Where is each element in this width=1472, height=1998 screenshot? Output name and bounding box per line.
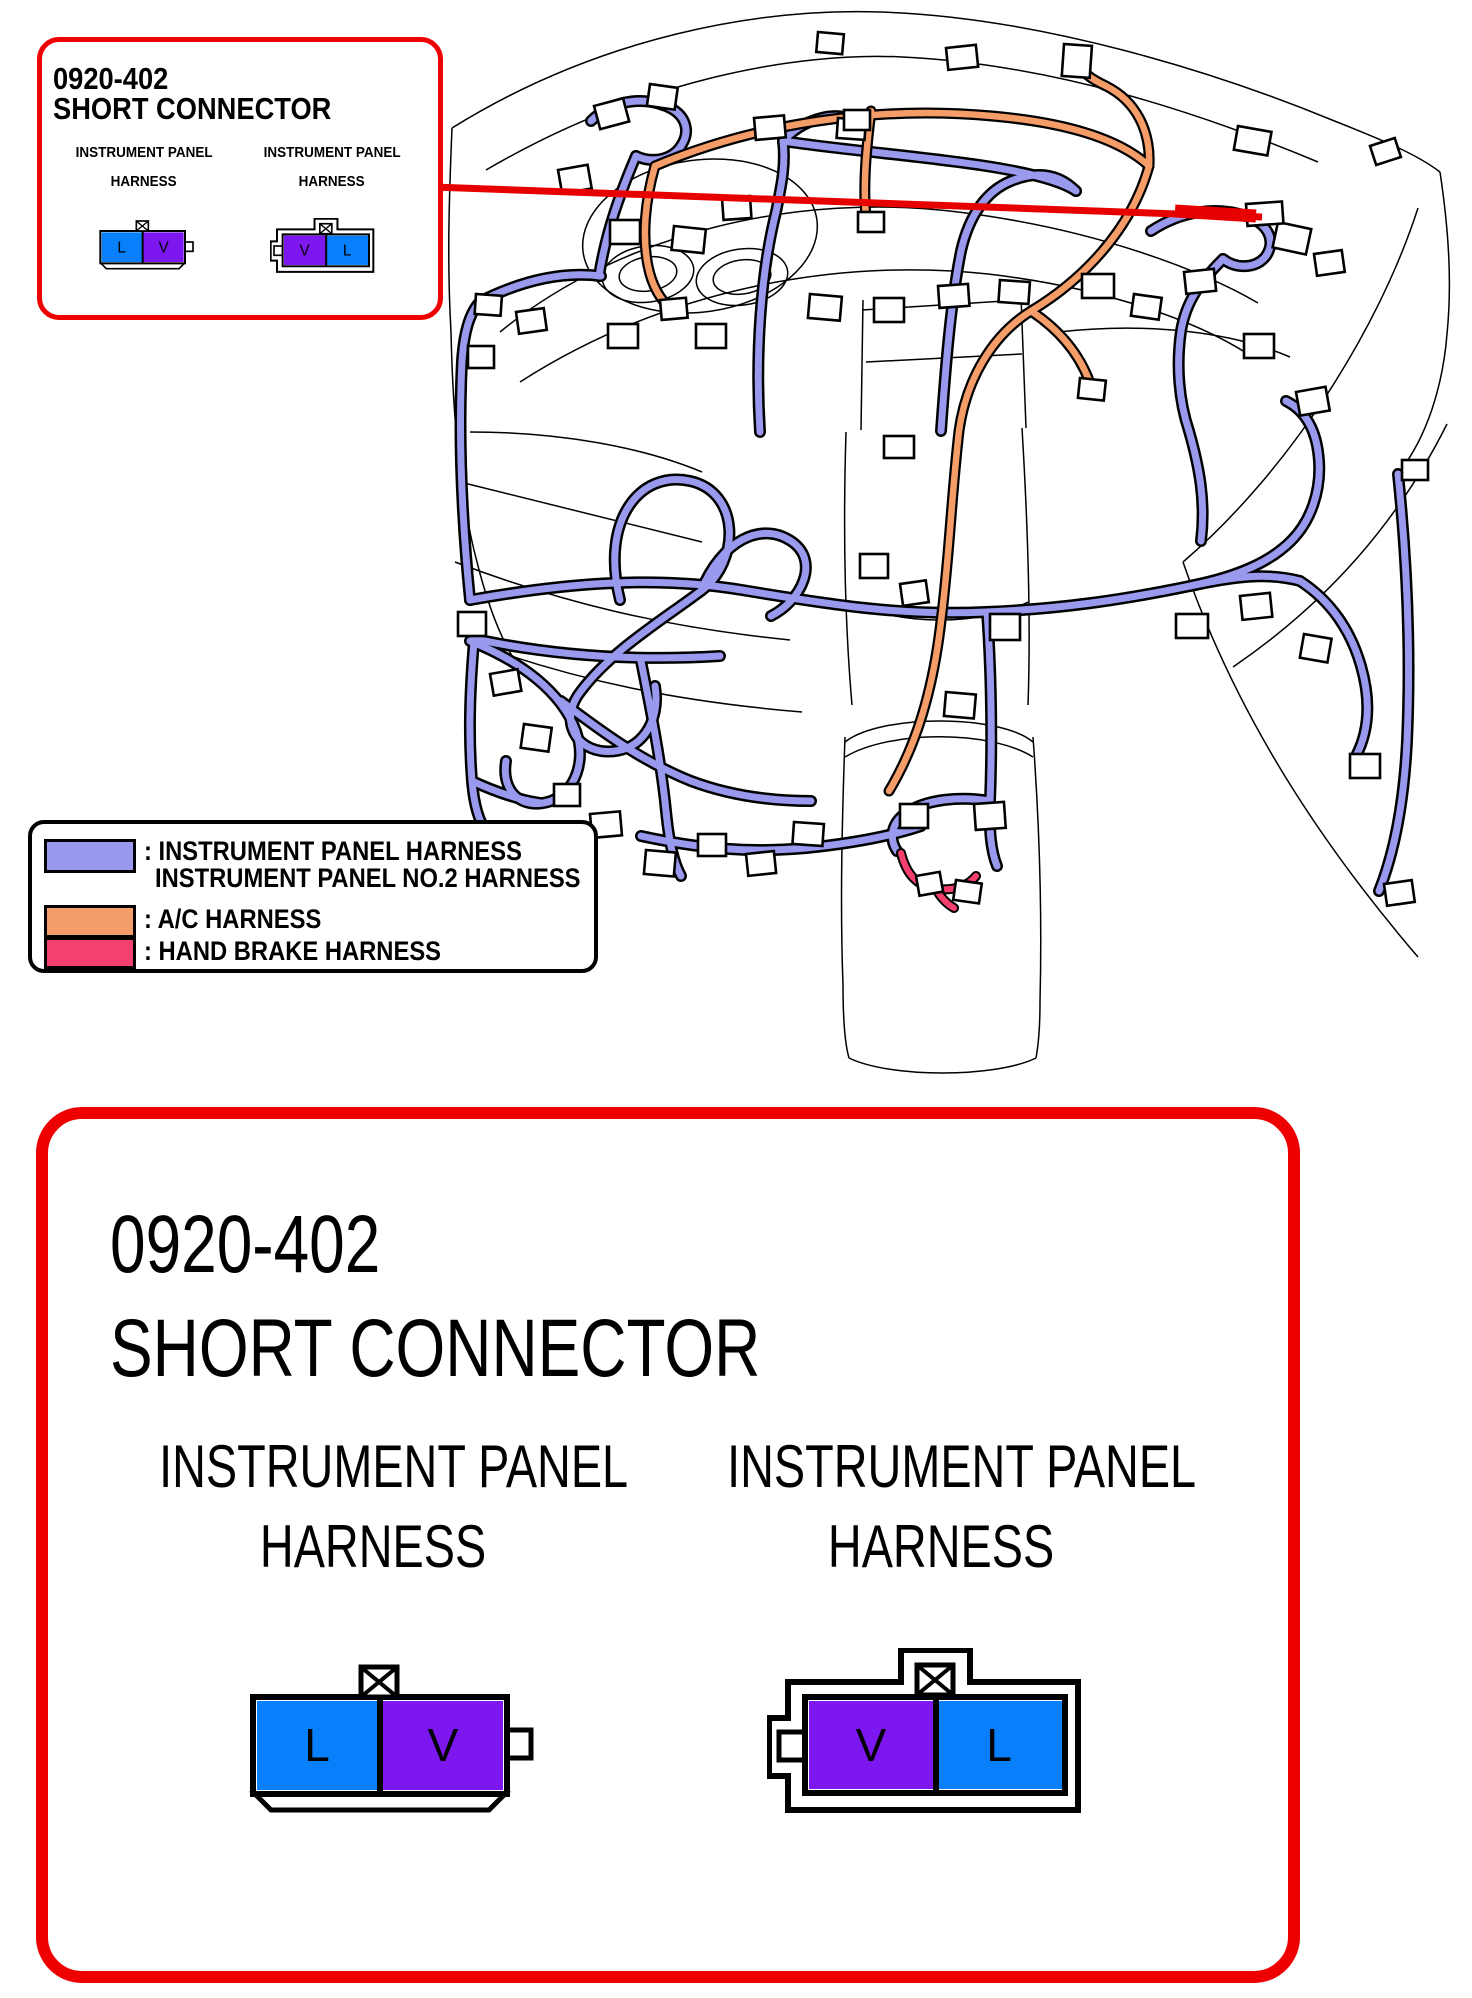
manual-page: 0920-402 SHORT CONNECTOR INSTRUMENT PANE… [0,0,1472,1998]
x-mark-icon [320,224,332,234]
detail-connector-vl: V L [767,1648,1083,1816]
legend-swatch-instrument-panel [44,839,136,873]
connector-tab [507,1730,531,1758]
callout-column-label-left: INSTRUMENT PANEL HARNESS [54,138,234,196]
connector-tab [185,242,193,251]
short-connector-callout-box: 0920-402 SHORT CONNECTOR INSTRUMENT PANE… [37,37,443,320]
terminal-letter: V [159,239,170,256]
terminal-letter: L [343,243,352,260]
detail-connector-lv: L V [249,1664,549,1814]
x-mark-icon [917,1665,953,1695]
legend-label: : INSTRUMENT PANEL HARNESS INSTRUMENT PA… [144,838,639,892]
harness-legend: : INSTRUMENT PANEL HARNESS INSTRUMENT PA… [28,820,598,973]
callout-column-label-right: INSTRUMENT PANEL HARNESS [242,138,422,196]
legend-label: : HAND BRAKE HARNESS [144,938,482,965]
legend-swatch-hand-brake [44,937,136,969]
callout-connector-lv: L V [99,220,199,270]
terminal-letter: L [304,1719,330,1771]
short-connector-detail-box: 0920-402 SHORT CONNECTOR INSTRUMENT PANE… [36,1107,1300,1983]
detail-title: SHORT CONNECTOR [110,1307,944,1391]
callout-connector-vl: V L [270,218,375,274]
terminal-letter: V [428,1719,459,1771]
x-mark-icon [136,221,148,231]
terminal-letter: L [986,1719,1012,1771]
x-mark-icon [361,1667,397,1697]
terminal-letter: V [856,1719,887,1771]
terminal-letter: V [299,243,310,260]
connector-tab [274,246,283,255]
legend-swatch-ac [44,905,136,938]
callout-title: SHORT CONNECTOR [53,94,369,124]
ac-harness-tubes [645,62,1149,791]
callout-part-code: 0920-402 [53,64,184,94]
terminal-letter: L [117,239,126,256]
detail-column-label-left: INSTRUMENT PANEL HARNESS [93,1427,653,1587]
detail-part-code: 0920-402 [110,1203,457,1287]
legend-label: : A/C HARNESS [144,906,346,933]
connector-tab [779,1732,805,1760]
detail-column-label-right: INSTRUMENT PANEL HARNESS [661,1427,1221,1587]
